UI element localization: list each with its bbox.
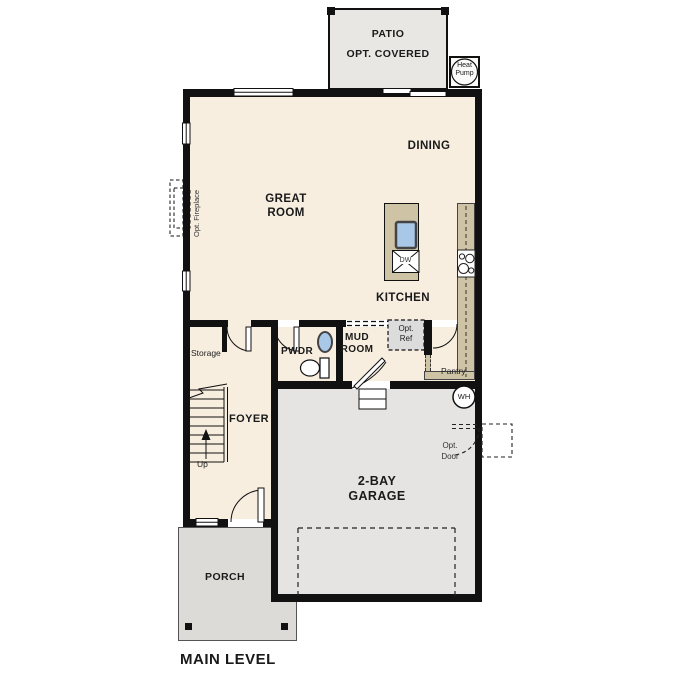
patio-option-label: OPT. COVERED	[347, 49, 430, 60]
foyer-label: FOYER	[229, 414, 269, 426]
garage-entry-door-leaf	[354, 358, 385, 389]
garage-label-2: GARAGE	[348, 490, 405, 503]
opt-door-label-2: Door	[441, 453, 458, 461]
range-burner-2	[466, 254, 474, 262]
range-burner-3	[459, 264, 469, 274]
range-burner-1	[459, 254, 464, 259]
opt-fireplace-inner	[174, 188, 190, 228]
opt-ref-label-1: Opt.	[398, 325, 413, 333]
toilet	[301, 358, 330, 378]
up-label: Up	[197, 460, 208, 469]
patio-slider-panel-1	[383, 89, 411, 94]
porch-label: PORCH	[205, 572, 245, 583]
pwdr-label: PWDR	[281, 347, 313, 358]
dining-label: DINING	[408, 140, 451, 152]
patio-label: PATIO	[372, 29, 405, 40]
opt-ref-label-2: Ref	[400, 335, 412, 343]
stair-break-line	[189, 384, 227, 398]
storage-label: Storage	[191, 349, 221, 358]
mud-room-label-1: MUD	[345, 333, 369, 344]
toilet-bowl	[301, 360, 320, 376]
patio-slider-panel-2	[410, 92, 446, 97]
island-sink	[396, 222, 416, 248]
toilet-tank	[320, 358, 329, 378]
patio-post-right	[441, 7, 449, 15]
garage-door-dashed	[298, 528, 455, 597]
range-burner-4	[469, 268, 474, 273]
opt-fireplace-label: Opt. Fireplace	[193, 179, 201, 237]
mud-room-label-2: ROOM	[341, 345, 374, 356]
stairs	[189, 384, 228, 462]
opt-opening-dashed	[347, 322, 389, 326]
floor-plan: PATIO OPT. COVERED Heat Pump DINING GREA…	[0, 0, 687, 687]
wh-label: WH	[458, 393, 471, 401]
garage-label-1: 2-BAY	[358, 475, 396, 488]
pwdr-sink	[318, 332, 332, 352]
opt-door-label-1: Opt.	[442, 442, 457, 450]
garage-step-1	[359, 389, 386, 399]
storage-door-leaf	[246, 327, 251, 351]
heat-pump-label-1: Heat	[457, 62, 472, 69]
range	[458, 250, 476, 277]
windows	[183, 89, 447, 527]
main-level-title: MAIN LEVEL	[180, 652, 276, 668]
opt-door	[452, 424, 512, 457]
great-room-label-1: GREAT	[265, 193, 306, 205]
dw-label: DW	[399, 257, 413, 264]
garage-step-2	[359, 399, 386, 409]
porch-post-right	[281, 623, 288, 630]
patio-post-left	[327, 7, 335, 15]
pantry-door-arc	[433, 324, 457, 348]
heat-pump-label-2: Pump	[455, 70, 473, 77]
porch-post-left	[185, 623, 192, 630]
front-door-leaf	[258, 488, 264, 522]
opt-fireplace	[170, 180, 190, 236]
great-room-label-2: ROOM	[267, 207, 304, 219]
kitchen-label: KITCHEN	[376, 292, 430, 304]
opt-door-dashed-box	[482, 424, 512, 457]
pantry-label: Pantry	[441, 367, 466, 376]
